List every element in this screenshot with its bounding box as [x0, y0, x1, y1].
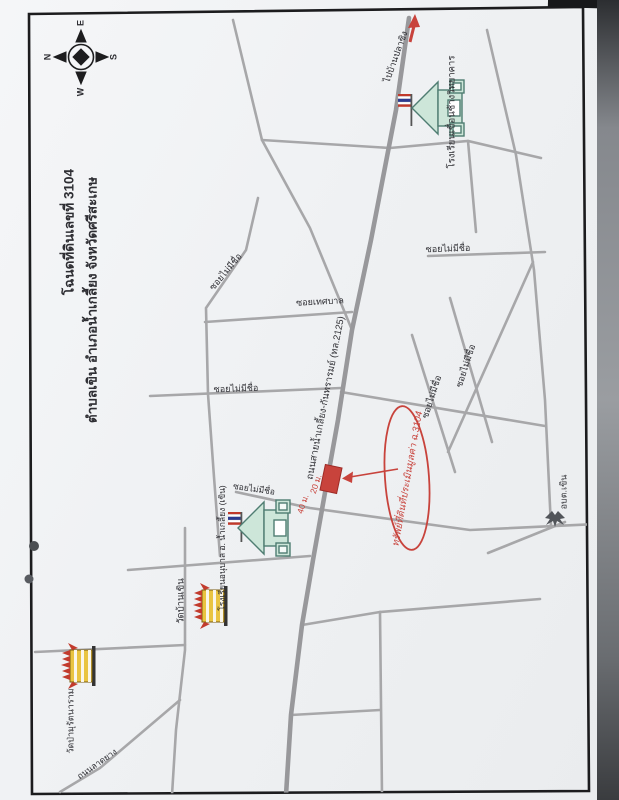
road-below-north-school — [390, 141, 541, 158]
thai-flag-icon — [398, 94, 412, 126]
scan-edge-shadow — [597, 0, 619, 800]
place-label-temple-pa: วัดป่ามุรัตนาราม — [67, 688, 76, 753]
road-southwest-vertical — [172, 528, 185, 795]
compass-north-label: N — [44, 54, 53, 61]
property-plot-marker — [320, 465, 342, 494]
compass-rose-icon — [54, 30, 108, 84]
compass-south-label: S — [110, 54, 119, 60]
map-border-frame — [29, 7, 589, 794]
property-callout-arrow-icon — [342, 469, 398, 483]
scanned-map-page: โฉนดที่ดินเลขที่ 3104 ตำบลเขิน อำเภอน้ำเ… — [0, 0, 619, 800]
compass-east-label: E — [77, 20, 86, 26]
compass-west-label: W — [77, 88, 86, 97]
road-bottom-horizontal — [291, 710, 380, 715]
deed-title-line1: โฉนดที่ดินเลขที่ 3104 — [62, 169, 76, 295]
road-label-soi-unnamed: ซอยไม่มีชื่อ — [214, 384, 259, 395]
road-top-center-horizontal — [262, 140, 390, 148]
road-west-vertical — [206, 198, 258, 556]
road-diagonal-3 — [448, 262, 533, 452]
road-south-vertical — [380, 612, 382, 795]
road-temple-horizontal — [35, 645, 185, 652]
place-label-sao-office: อบต.เขิน — [560, 475, 569, 510]
school-building-icon — [238, 500, 290, 556]
road-network — [35, 18, 598, 795]
place-label-school-south: โรงเรียนอนุบาล อ. น้ำเกลี้ยง (เขิน) — [218, 485, 227, 611]
road-mid-east — [341, 392, 545, 426]
place-label-school-north: โรงเรียนเขื่อนช้างวิทยาคาร — [447, 56, 457, 169]
punch-hole — [25, 575, 34, 584]
road-soi-thetsaban — [205, 312, 352, 322]
place-label-temple-khoen: วัดบ้านเขิน — [176, 578, 186, 624]
road-top-center-diagonal — [233, 20, 352, 330]
road-south-east-horizontal — [380, 599, 540, 612]
road-label-soi-unnamed: ซอยไม่มีชื่อ — [426, 244, 471, 255]
road-south-connector — [302, 612, 380, 625]
punch-hole — [29, 541, 39, 551]
road-east-long — [487, 30, 551, 527]
road-main-highway — [286, 18, 409, 795]
deed-title-line2: ตำบลเขิน อำเภอน้ำเกลี้ยง จังหวัดศรีสะเกษ — [85, 177, 99, 423]
road-connector-north — [468, 141, 476, 232]
